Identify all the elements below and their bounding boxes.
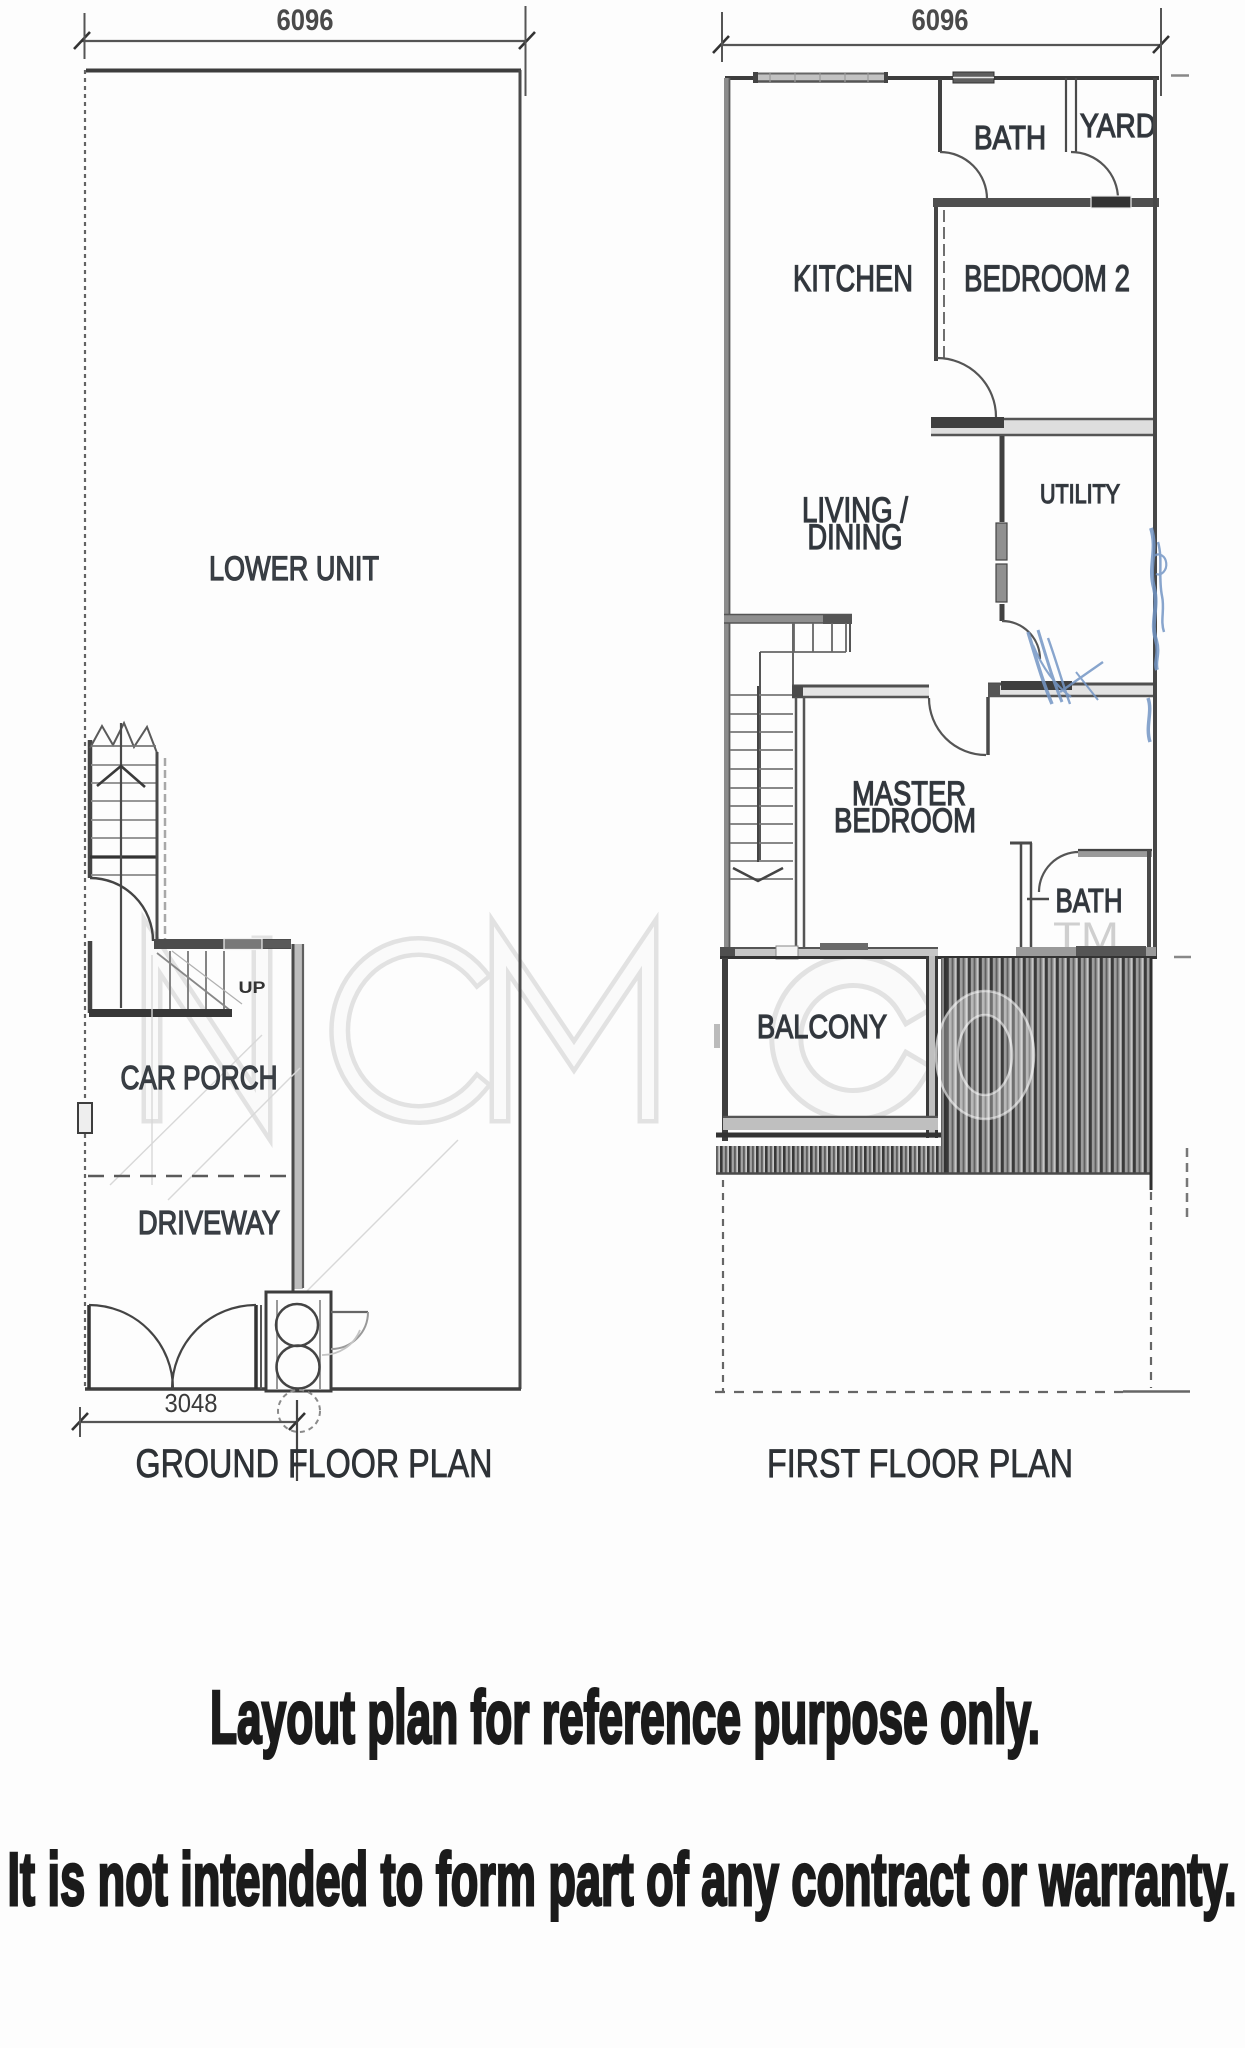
svg-text:GROUND FLOOR PLAN: GROUND FLOOR PLAN: [136, 1442, 493, 1486]
svg-text:UP: UP: [239, 978, 266, 997]
svg-text:BEDROOM: BEDROOM: [834, 802, 976, 840]
svg-text:YARD: YARD: [1080, 107, 1156, 144]
svg-text:It is not intended to form par: It is not intended to form part of any c…: [8, 1837, 1237, 1921]
svg-text:UTILITY: UTILITY: [1040, 479, 1120, 509]
svg-text:Layout plan for reference purp: Layout plan for reference purpose only.: [210, 1675, 1040, 1759]
svg-text:BATH: BATH: [1056, 882, 1123, 919]
svg-text:6096: 6096: [912, 4, 969, 37]
svg-text:6096: 6096: [277, 4, 334, 37]
svg-text:FIRST FLOOR PLAN: FIRST FLOOR PLAN: [767, 1442, 1073, 1486]
svg-text:CAR PORCH: CAR PORCH: [121, 1059, 278, 1096]
svg-text:BATH: BATH: [974, 119, 1046, 156]
svg-text:BALCONY: BALCONY: [757, 1008, 887, 1045]
svg-text:BEDROOM 2: BEDROOM 2: [964, 258, 1130, 299]
svg-text:DINING: DINING: [808, 518, 903, 557]
svg-text:3048: 3048: [165, 1388, 218, 1418]
svg-text:KITCHEN: KITCHEN: [793, 258, 913, 299]
svg-text:LOWER UNIT: LOWER UNIT: [209, 550, 379, 588]
svg-text:DRIVEWAY: DRIVEWAY: [138, 1204, 280, 1241]
